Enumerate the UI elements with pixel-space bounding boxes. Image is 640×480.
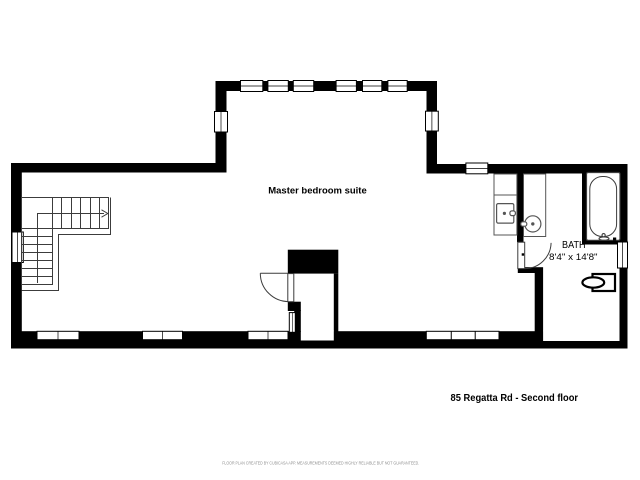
svg-text:85 Regatta Rd - Second floor: 85 Regatta Rd - Second floor — [451, 393, 579, 404]
svg-text:8'4" x 14'8": 8'4" x 14'8" — [549, 252, 598, 262]
svg-text:FLOOR PLAN CREATED BY CUBICASA: FLOOR PLAN CREATED BY CUBICASA APP. MEAS… — [222, 460, 419, 465]
svg-text:BATH: BATH — [562, 240, 586, 251]
svg-text:Master bedroom suite: Master bedroom suite — [268, 185, 367, 196]
